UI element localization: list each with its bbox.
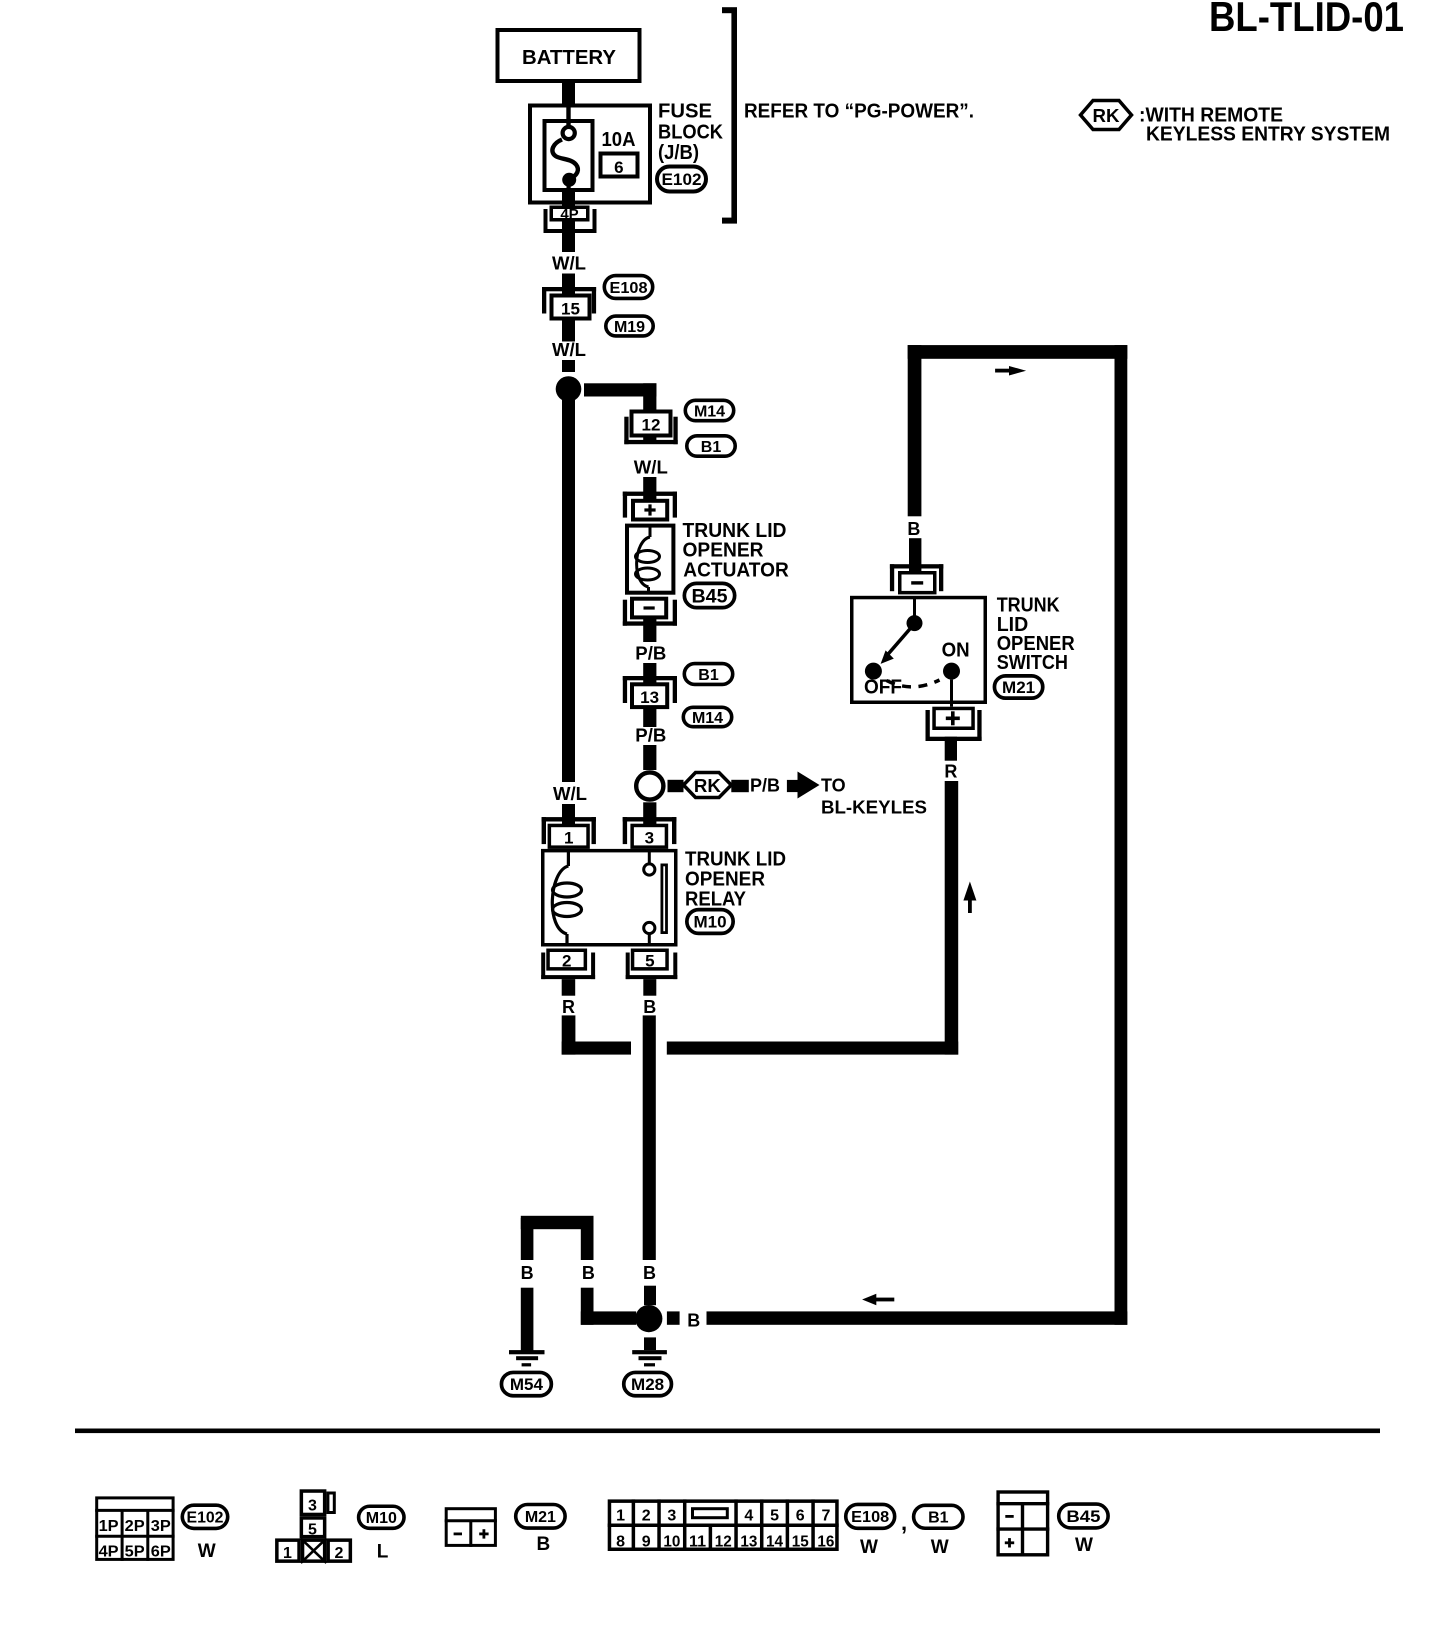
svg-text:P/B: P/B — [635, 726, 666, 746]
svg-text:E102: E102 — [662, 170, 702, 189]
svg-text:RELAY: RELAY — [685, 888, 747, 910]
svg-text:R: R — [562, 997, 575, 1017]
svg-text:W/L: W/L — [552, 340, 586, 360]
svg-text:14: 14 — [766, 1534, 783, 1551]
svg-text:3: 3 — [645, 829, 654, 848]
svg-text:RK: RK — [1093, 106, 1120, 126]
svg-text:M28: M28 — [631, 1375, 664, 1394]
svg-text:M14: M14 — [694, 403, 725, 420]
svg-text:W: W — [198, 1541, 216, 1562]
svg-text:12: 12 — [715, 1534, 732, 1551]
svg-text:W: W — [931, 1537, 949, 1558]
svg-text:B1: B1 — [928, 1510, 949, 1527]
svg-text:5: 5 — [308, 1522, 317, 1539]
svg-text:P/B: P/B — [635, 644, 666, 664]
svg-text:B45: B45 — [1066, 1507, 1100, 1526]
svg-text:M10: M10 — [366, 1510, 397, 1527]
svg-text:6: 6 — [796, 1508, 805, 1525]
svg-text:TO: TO — [821, 776, 846, 796]
svg-text:2: 2 — [642, 1508, 651, 1525]
svg-text:4: 4 — [744, 1508, 753, 1525]
svg-text:TRUNK LID: TRUNK LID — [685, 849, 786, 871]
svg-text:BLOCK: BLOCK — [658, 121, 724, 143]
svg-text:4P: 4P — [560, 206, 578, 223]
svg-text:2: 2 — [562, 952, 571, 971]
svg-text:B: B — [643, 997, 656, 1017]
svg-text:SWITCH: SWITCH — [997, 652, 1068, 674]
svg-text:9: 9 — [642, 1534, 651, 1551]
svg-text:KEYLESS ENTRY SYSTEM: KEYLESS ENTRY SYSTEM — [1146, 124, 1390, 146]
svg-text:B1: B1 — [698, 667, 719, 684]
svg-text:BATTERY: BATTERY — [522, 47, 617, 69]
svg-text:BL-KEYLES: BL-KEYLES — [821, 798, 927, 818]
svg-text:E102: E102 — [187, 1510, 224, 1527]
svg-text:12: 12 — [642, 416, 661, 435]
svg-text:R: R — [944, 762, 957, 782]
svg-text:M21: M21 — [1002, 678, 1035, 697]
svg-text:3P: 3P — [151, 1518, 171, 1535]
svg-text:ON: ON — [942, 640, 970, 662]
svg-text:OPENER: OPENER — [683, 540, 765, 562]
svg-text:4P: 4P — [99, 1544, 119, 1561]
svg-text:M14: M14 — [692, 710, 723, 727]
svg-text:(J/B): (J/B) — [658, 142, 699, 164]
svg-text:B1: B1 — [701, 439, 722, 456]
svg-text:15: 15 — [792, 1534, 809, 1551]
svg-text:ACTUATOR: ACTUATOR — [683, 560, 789, 582]
svg-text:E108: E108 — [610, 280, 648, 297]
svg-text:5: 5 — [645, 952, 654, 971]
svg-text:13: 13 — [740, 1534, 757, 1551]
svg-text:1: 1 — [564, 829, 573, 848]
svg-text:W/L: W/L — [553, 784, 587, 804]
svg-text:7: 7 — [821, 1508, 830, 1525]
svg-text:M19: M19 — [614, 319, 645, 336]
svg-text:FUSE: FUSE — [658, 100, 712, 122]
svg-text:REFER TO “PG-POWER”.: REFER TO “PG-POWER”. — [744, 100, 974, 122]
svg-text:B: B — [537, 1534, 551, 1555]
svg-text:W: W — [1075, 1535, 1093, 1556]
svg-text:OFF: OFF — [864, 677, 902, 699]
svg-text:15: 15 — [561, 300, 580, 319]
svg-text:B45: B45 — [692, 586, 728, 607]
svg-text:B: B — [521, 1263, 534, 1283]
svg-text:,: , — [901, 1510, 907, 1535]
svg-text:16: 16 — [817, 1534, 834, 1551]
svg-text:1: 1 — [283, 1545, 292, 1562]
svg-text:10: 10 — [663, 1534, 680, 1551]
svg-text:3: 3 — [667, 1508, 676, 1525]
svg-text:1P: 1P — [99, 1518, 119, 1535]
svg-text:M10: M10 — [693, 913, 726, 932]
svg-text:W: W — [860, 1537, 878, 1558]
svg-text:P/B: P/B — [750, 776, 780, 796]
svg-text:B: B — [687, 1311, 700, 1331]
svg-text:M54: M54 — [510, 1375, 544, 1394]
svg-text:M21: M21 — [525, 1509, 556, 1526]
svg-text:6: 6 — [614, 158, 623, 177]
svg-text:L: L — [377, 1542, 389, 1563]
svg-text:2: 2 — [335, 1545, 344, 1562]
svg-text:6P: 6P — [151, 1544, 171, 1561]
svg-text:8: 8 — [616, 1534, 625, 1551]
svg-text:10A: 10A — [602, 129, 636, 151]
svg-text:BL-TLID-01: BL-TLID-01 — [1209, 0, 1404, 40]
svg-text:5P: 5P — [125, 1544, 145, 1561]
svg-text:W/L: W/L — [552, 254, 586, 274]
svg-text:B: B — [907, 519, 920, 539]
svg-text:11: 11 — [689, 1534, 706, 1551]
svg-text:RK: RK — [694, 776, 721, 796]
svg-text:2P: 2P — [125, 1518, 145, 1535]
svg-text:B: B — [643, 1263, 656, 1283]
svg-text:1: 1 — [616, 1508, 625, 1525]
svg-text:W/L: W/L — [634, 458, 668, 478]
svg-text:5: 5 — [770, 1508, 779, 1525]
svg-text:E108: E108 — [851, 1509, 889, 1526]
svg-text:3: 3 — [308, 1498, 317, 1515]
svg-text:13: 13 — [640, 688, 659, 707]
svg-text:B: B — [582, 1263, 595, 1283]
